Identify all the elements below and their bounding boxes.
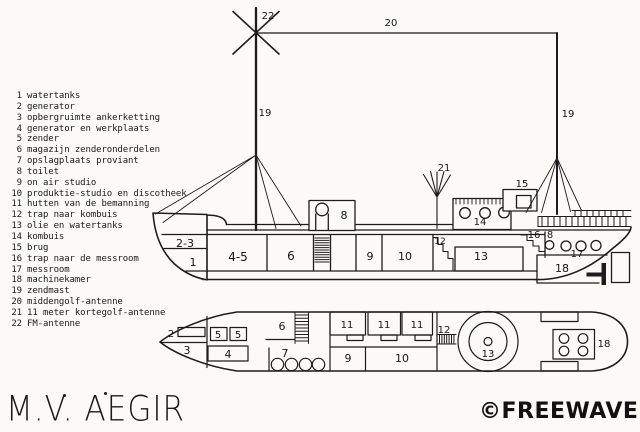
top-view xyxy=(160,312,628,372)
ship-diagram: 2220191921158142-314-5691012131681718 xyxy=(0,0,640,432)
diagram-label: 8 xyxy=(547,230,553,241)
diagram-label: 7 xyxy=(282,347,289,360)
diagram-label: 19 xyxy=(259,108,272,119)
provision-barrel xyxy=(312,358,324,370)
diagram-label: 5 xyxy=(215,330,221,341)
fore-mast-guys xyxy=(156,155,302,229)
engine-cylinder xyxy=(578,346,588,356)
engine-cylinder xyxy=(559,346,569,356)
provision-barrel xyxy=(271,358,283,370)
rudder-tiller xyxy=(587,273,603,277)
top-hull-outline xyxy=(160,312,628,371)
porthole xyxy=(561,241,571,251)
diagram-label: 3 xyxy=(184,344,191,357)
cabin-door-notch xyxy=(381,335,397,341)
diagram-label: 18 xyxy=(555,262,569,275)
diagram-label: 21 xyxy=(438,163,451,174)
copyright-credit: ©FREEWAVE xyxy=(479,399,638,424)
engine-18-box xyxy=(553,330,595,360)
diagram-label: 6 xyxy=(287,249,295,263)
vessel-name-logo: M.V. AEGIR xyxy=(6,389,185,429)
diagram-label: 17 xyxy=(571,249,584,260)
cabin-door-notch xyxy=(347,335,363,341)
diagram-label: 12 xyxy=(434,237,445,247)
hold-ladder-hatch xyxy=(315,238,329,262)
cabin-door-notch xyxy=(415,335,431,341)
diagram-label: 4 xyxy=(225,348,232,361)
diagram-label: 22 xyxy=(262,11,275,22)
engine-cylinder xyxy=(559,334,569,344)
diagram-label: 9 xyxy=(345,352,352,365)
side-view xyxy=(153,8,631,285)
diagram-label: 11 xyxy=(411,320,424,331)
diagram-label: 13 xyxy=(482,349,495,360)
stern-notch-top xyxy=(541,312,578,322)
tank-13-box xyxy=(455,247,523,271)
diagram-label: 13 xyxy=(474,250,488,263)
diagram-label: 16 xyxy=(528,230,541,241)
tank-13-hub xyxy=(484,338,492,346)
diagram-label: 15 xyxy=(516,179,529,190)
diagram-label: 14 xyxy=(474,217,487,228)
diagram-label: 4-5 xyxy=(228,250,248,264)
porthole xyxy=(545,241,554,250)
provision-barrel xyxy=(299,358,311,370)
diagram-label: 12 xyxy=(438,325,451,336)
diagram-label: 18 xyxy=(598,339,611,350)
diagram-label: 5 xyxy=(235,330,241,341)
diagram-label: 1 xyxy=(190,256,197,269)
stern-box xyxy=(612,253,630,283)
sw-antenna-21 xyxy=(424,172,451,229)
diagram-label: 11 xyxy=(341,320,354,331)
diagram-label: 8 xyxy=(341,209,348,222)
diagram-label: 10 xyxy=(398,250,412,263)
top-bow-lines xyxy=(161,317,207,368)
ladder-6 xyxy=(295,312,309,344)
logo-dot xyxy=(104,392,107,395)
engine-cylinder xyxy=(578,334,588,344)
diagram-label: 2 xyxy=(168,329,174,340)
top-view-labels: 2355467111111910121318 xyxy=(168,320,611,365)
diagram-label: 2-3 xyxy=(176,237,194,250)
tank-13-outer xyxy=(458,312,518,372)
logo-dot xyxy=(63,394,66,397)
diagram-label: 10 xyxy=(395,352,409,365)
diagram-label: 20 xyxy=(385,18,398,29)
stern-notch-bottom xyxy=(541,362,578,372)
porthole xyxy=(591,241,601,251)
diagram-label: 6 xyxy=(279,320,286,333)
diagram-label: 19 xyxy=(562,109,575,120)
diagram-label: 9 xyxy=(367,250,374,263)
provision-barrel xyxy=(285,358,297,370)
aft-railing xyxy=(538,211,631,227)
diagram-label: 11 xyxy=(378,320,391,331)
